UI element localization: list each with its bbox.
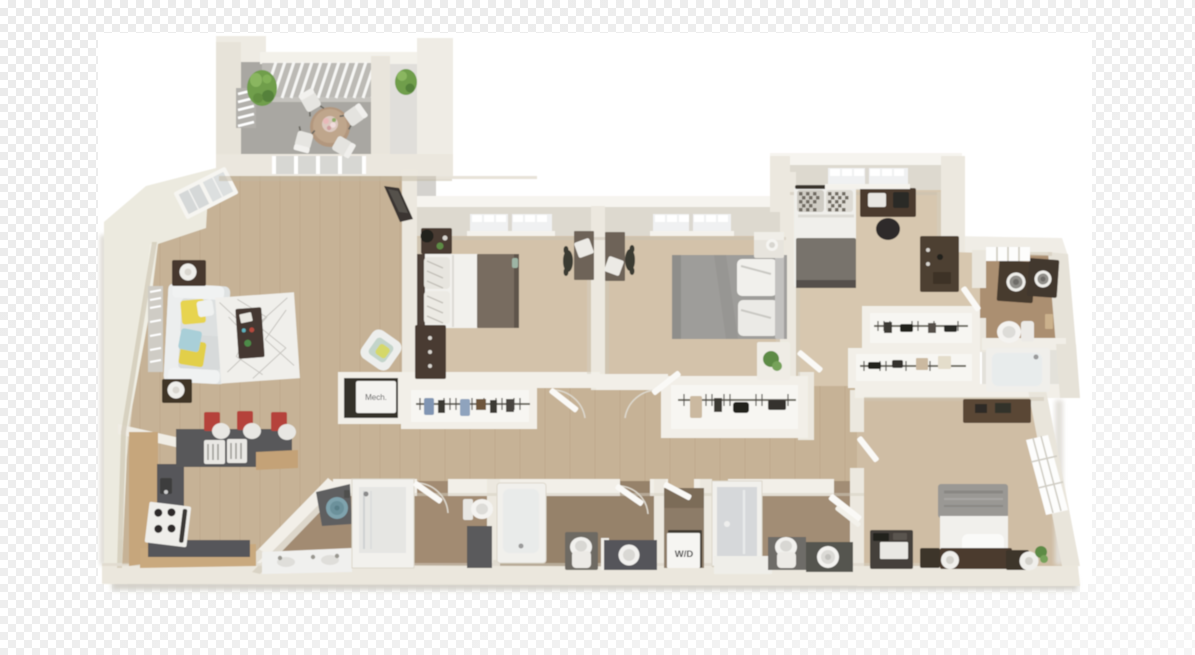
svg-text:Mech.: Mech. <box>365 393 387 402</box>
svg-text:W/D: W/D <box>675 549 694 560</box>
